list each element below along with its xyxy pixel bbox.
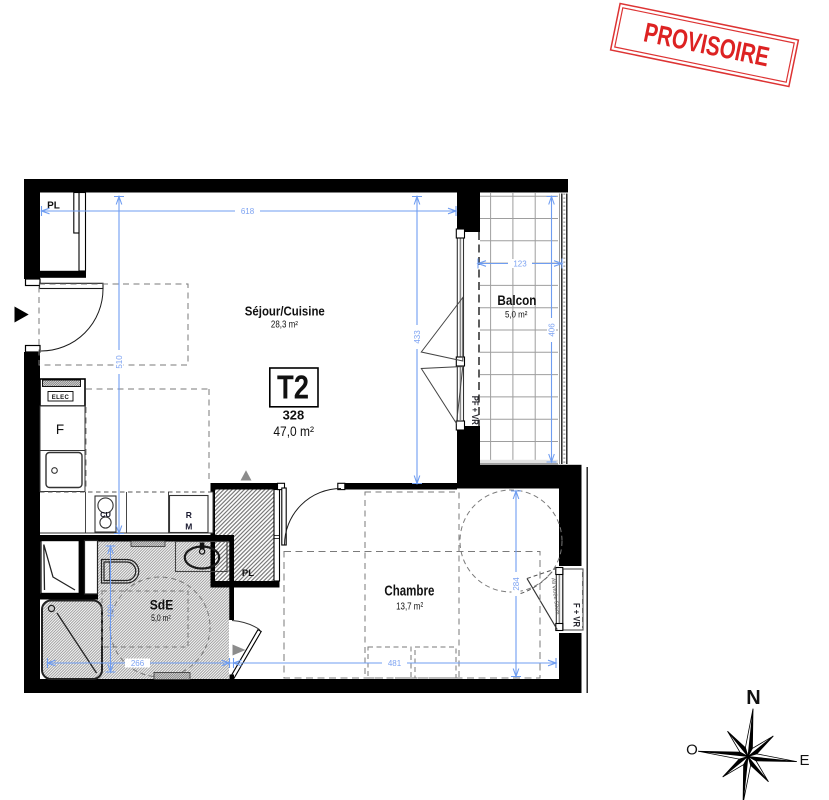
svg-text:266: 266 — [131, 659, 145, 668]
svg-text:Balcon: Balcon — [497, 292, 536, 308]
svg-text:CU: CU — [100, 510, 111, 519]
svg-text:618: 618 — [241, 207, 255, 216]
svg-text:N: N — [746, 687, 760, 709]
svg-text:406: 406 — [547, 323, 556, 337]
svg-text:28,3 m²: 28,3 m² — [271, 319, 299, 330]
svg-text:510: 510 — [115, 355, 124, 369]
svg-text:O: O — [686, 742, 698, 759]
svg-text:284: 284 — [512, 577, 521, 591]
svg-text:47,0 m²: 47,0 m² — [273, 423, 314, 439]
svg-text:F: F — [56, 422, 64, 437]
svg-text:Séjour/Cuisine: Séjour/Cuisine — [245, 303, 325, 318]
svg-text:E: E — [799, 752, 809, 769]
svg-text:190: 190 — [106, 604, 115, 618]
svg-text:433: 433 — [413, 330, 422, 344]
svg-text:5,0 m²: 5,0 m² — [505, 310, 528, 321]
svg-text:Chambre: Chambre — [384, 584, 434, 600]
svg-text:481: 481 — [388, 659, 402, 668]
svg-text:PL: PL — [47, 201, 60, 212]
svg-text:R: R — [186, 510, 192, 520]
svg-text:SdE: SdE — [150, 598, 174, 613]
svg-text:123: 123 — [513, 260, 527, 269]
svg-text:F + VR: F + VR — [571, 603, 581, 627]
svg-text:13,7 m²: 13,7 m² — [396, 602, 424, 613]
svg-text:PF + VR: PF + VR — [470, 396, 480, 425]
svg-text:PL: PL — [242, 568, 254, 579]
svg-text:T2: T2 — [277, 369, 309, 406]
svg-text:328: 328 — [283, 407, 305, 422]
svg-text:M: M — [185, 522, 192, 532]
svg-text:ELEC: ELEC — [52, 395, 70, 401]
svg-text:5,0 m²: 5,0 m² — [151, 613, 171, 623]
